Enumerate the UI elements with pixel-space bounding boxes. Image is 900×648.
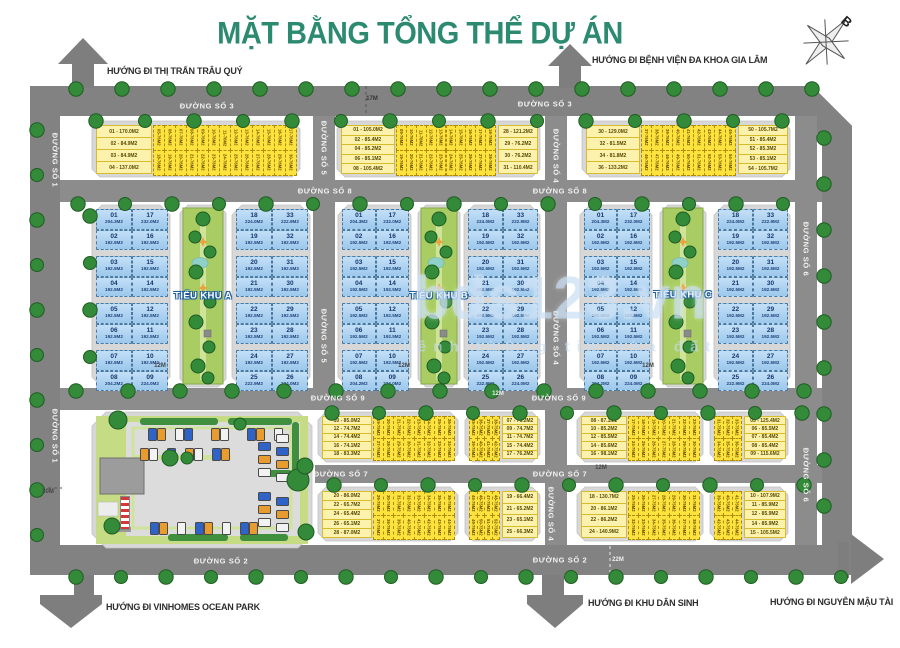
strip-lot: 19-75M2 bbox=[373, 416, 384, 439]
tree-icon bbox=[483, 82, 497, 96]
lot-number: 04 bbox=[110, 281, 117, 288]
strip-lot: 25-76M2 bbox=[230, 150, 242, 176]
parcel-lot: 32192.5M2 bbox=[503, 230, 538, 251]
arrow-stub bbox=[559, 64, 581, 88]
tree-icon bbox=[196, 212, 210, 226]
strip-lot: 38-75M2 bbox=[492, 416, 501, 439]
tree-icon bbox=[161, 82, 175, 96]
strip-label: 09-76M2 bbox=[399, 129, 404, 146]
strip-lot: 36-75M2 bbox=[669, 515, 680, 540]
lot-area: 192.5M2 bbox=[727, 314, 745, 319]
tree-icon bbox=[795, 406, 809, 420]
strip-lot: 28-76M2 bbox=[485, 150, 496, 176]
strip-label: 12-76M2 bbox=[429, 129, 434, 146]
strip-lot: 14-76M2 bbox=[252, 125, 264, 151]
tree-icon bbox=[789, 570, 803, 584]
lot-area: 192.5M2 bbox=[105, 361, 123, 366]
corner-lot: 34 - 81.8M2 bbox=[586, 149, 640, 162]
corner-lot: 02 - 85.4M2 bbox=[341, 135, 395, 146]
tree-icon bbox=[745, 571, 758, 584]
strip-label: 25-75M2 bbox=[437, 419, 442, 436]
strip-lot: 13-76M2 bbox=[241, 125, 253, 151]
strip-label: 45-76M2 bbox=[728, 129, 733, 146]
parcel-lot: 06192.5M2 bbox=[342, 324, 376, 345]
corner-lot: 28 - 121.2M2 bbox=[498, 125, 538, 138]
arrow-right-icon bbox=[851, 534, 884, 584]
corner-lot: 10 - 85.0M2 bbox=[322, 416, 372, 425]
strip-label: 32-75M2 bbox=[631, 519, 636, 536]
lot-area: 192.5M2 bbox=[727, 335, 745, 340]
tree-icon bbox=[475, 571, 488, 584]
parcel-lot: 31192.5M2 bbox=[753, 256, 788, 277]
tree-icon bbox=[817, 407, 831, 421]
strip-label: 47-75M2 bbox=[486, 495, 491, 512]
lot-area: 192.5M2 bbox=[762, 267, 780, 272]
strip-label: 41-75M2 bbox=[735, 495, 740, 512]
tree-icon bbox=[287, 469, 309, 491]
tree-icon bbox=[187, 114, 201, 128]
strip-lot: 45-75M2 bbox=[469, 491, 478, 516]
arrow-bar bbox=[527, 595, 583, 604]
corner-lot: 08 - 87.1M2 bbox=[581, 416, 627, 425]
hedge bbox=[258, 470, 292, 477]
strip-lot: 37-75M2 bbox=[373, 515, 384, 540]
school-building bbox=[100, 458, 144, 494]
lot-number: 25 bbox=[250, 375, 257, 382]
lot-number: 26 bbox=[286, 375, 293, 382]
strip-label: 30-75M2 bbox=[386, 495, 391, 512]
corner-lot: 28 - 87.0M2 bbox=[322, 528, 372, 538]
road-label-vertical: ĐƯỜNG SỐ 4 bbox=[552, 129, 561, 183]
strip-lot: 35-75M2 bbox=[469, 416, 478, 439]
tree-icon bbox=[181, 452, 193, 464]
tree-icon bbox=[234, 418, 246, 430]
lot-number: 22 bbox=[250, 307, 257, 314]
strip-label: 21-75M2 bbox=[396, 419, 401, 436]
car bbox=[249, 522, 258, 535]
tree-icon bbox=[835, 571, 848, 584]
parcel-lot: 21192.5M2 bbox=[236, 277, 272, 298]
car bbox=[195, 522, 204, 535]
lot-area: 222.9M2 bbox=[762, 220, 780, 225]
lot-number: 09 bbox=[389, 375, 396, 382]
tree-icon bbox=[481, 114, 495, 128]
lot-area: 192.5M2 bbox=[141, 335, 159, 340]
strip-lot: 41-75M2 bbox=[732, 491, 742, 516]
tree-icon bbox=[31, 169, 44, 182]
lot-area: 224.0M2 bbox=[727, 220, 745, 225]
lot-number: 27 bbox=[767, 354, 774, 361]
arrow-stub bbox=[72, 62, 94, 88]
tree-icon bbox=[225, 384, 239, 398]
strip-lot: 16-76M2 bbox=[274, 125, 286, 151]
strip-lot: 25-75M2 bbox=[628, 491, 639, 516]
lot-number: 17 bbox=[146, 213, 153, 220]
car bbox=[276, 434, 289, 443]
strip-label: 25-76M2 bbox=[234, 154, 239, 171]
parcel-lot: 14192.5M2 bbox=[376, 277, 410, 298]
tree-icon bbox=[30, 393, 44, 407]
car bbox=[157, 428, 166, 441]
strip-label: 22-75M2 bbox=[406, 419, 411, 436]
strip-label: 29-75M2 bbox=[672, 495, 677, 512]
car bbox=[185, 448, 194, 461]
lot-number: 28 bbox=[286, 328, 293, 335]
strip-label: 28-75M2 bbox=[661, 495, 666, 512]
parcel-lot: 32192.5M2 bbox=[753, 230, 788, 251]
tree-icon bbox=[575, 82, 589, 96]
strip-lot: 36-75M2 bbox=[732, 438, 742, 461]
road-label: ĐƯỜNG SỐ 8 bbox=[533, 187, 587, 196]
lot-number: 19 bbox=[732, 234, 739, 241]
strip-lot: 05-76M2 bbox=[153, 125, 165, 151]
parcel-lot: 08204.2M2 bbox=[342, 371, 376, 392]
strip-label: 14-76M2 bbox=[448, 129, 453, 146]
tree-icon bbox=[119, 198, 132, 211]
corner-lot: 52 - 85.3M2 bbox=[738, 144, 788, 155]
lot-area: 222.9M2 bbox=[281, 220, 299, 225]
lot-number: 06 bbox=[110, 328, 117, 335]
strip-label: 22-76M2 bbox=[201, 154, 206, 171]
lot-area: 224.0M2 bbox=[141, 382, 159, 387]
lot-area: 192.5M2 bbox=[141, 288, 159, 293]
parcel-lot: 20192.5M2 bbox=[236, 256, 272, 277]
car bbox=[240, 522, 249, 535]
tree-icon bbox=[433, 115, 446, 128]
direction-label-benh-vien: HƯỚNG ĐI BỆNH VIỆN ĐA KHOA GIA LÂM bbox=[592, 55, 767, 65]
strip-label: 48-76M2 bbox=[665, 154, 670, 171]
lot-area: 192.5M2 bbox=[592, 361, 610, 366]
strip-label: 45-75M2 bbox=[471, 495, 476, 512]
strip-lot: 25-75M2 bbox=[434, 416, 445, 439]
tree-icon bbox=[249, 570, 263, 584]
strip-lot: 51-76M2 bbox=[693, 150, 704, 176]
lot-number: 29 bbox=[286, 307, 293, 314]
tree-icon bbox=[419, 406, 433, 420]
block-platform bbox=[577, 412, 703, 462]
parcel-lot: 04192.5M2 bbox=[96, 277, 132, 298]
parcel-lot: 12192.5M2 bbox=[132, 303, 168, 324]
tree-icon bbox=[817, 453, 831, 467]
corner-lot: 14 - 85.9M2 bbox=[744, 519, 786, 529]
strip-lot: 31-75M2 bbox=[689, 491, 700, 516]
parcel-lot: 08204.2M2 bbox=[96, 371, 132, 392]
parcel-lot: 11192.5M2 bbox=[132, 324, 168, 345]
strip-lot: 27-75M2 bbox=[648, 491, 659, 516]
strip-lot: 35-75M2 bbox=[723, 438, 733, 461]
parcel-lot: 29192.5M2 bbox=[272, 303, 308, 324]
strip-label: 38-75M2 bbox=[386, 519, 391, 536]
tree-icon bbox=[727, 115, 740, 128]
parcel-lot: 23192.5M2 bbox=[718, 324, 753, 345]
strip-label: 42-76M2 bbox=[696, 129, 701, 146]
tree-icon bbox=[325, 406, 339, 420]
parcel-lot: 07192.5M2 bbox=[342, 350, 376, 371]
hedge bbox=[240, 534, 288, 541]
strip-label: 13-76M2 bbox=[245, 129, 250, 146]
lot-number: 18 bbox=[732, 213, 739, 220]
tree-icon bbox=[189, 315, 203, 329]
block-platform bbox=[318, 487, 458, 541]
lot-area: 222.9M2 bbox=[477, 382, 495, 387]
corner-lot: 09 - 115.6M2 bbox=[744, 450, 786, 459]
strip-label: 40-76M2 bbox=[676, 129, 681, 146]
lot-area: 192.5M2 bbox=[245, 241, 263, 246]
lot-area: 192.5M2 bbox=[141, 267, 159, 272]
car bbox=[258, 468, 271, 477]
strip-lot: 29-75M2 bbox=[669, 491, 680, 516]
strip-lot: 39-76M2 bbox=[662, 125, 673, 151]
strip-lot: 07-76M2 bbox=[175, 125, 187, 151]
strip-lot: 21-75M2 bbox=[669, 416, 680, 439]
lot-area: 222.9M2 bbox=[245, 382, 263, 387]
tree-icon bbox=[713, 82, 727, 96]
strip-label: 32-75M2 bbox=[427, 441, 432, 458]
strip-lot: 13-76M2 bbox=[436, 125, 447, 151]
lot-area: 192.5M2 bbox=[350, 335, 368, 340]
strip-label: 34-75M2 bbox=[447, 441, 452, 458]
corner-lot: 12 - 85.5M2 bbox=[581, 433, 627, 442]
strip-label: 43-75M2 bbox=[437, 519, 442, 536]
strip-label: 38-75M2 bbox=[692, 519, 697, 536]
compass-north-label: B bbox=[838, 13, 855, 30]
strip-lot: 29-75M2 bbox=[679, 438, 690, 461]
lot-area: 192.5M2 bbox=[350, 267, 368, 272]
strip-lot: 40-75M2 bbox=[723, 491, 733, 516]
strip-label: 26-76M2 bbox=[468, 154, 473, 171]
strip-lot: 24-76M2 bbox=[446, 150, 457, 176]
strip-lot: 38-75M2 bbox=[689, 515, 700, 540]
car bbox=[247, 428, 256, 441]
corner-lot: 11 - 74.7M2 bbox=[502, 433, 538, 442]
strip-lot: 30-76M2 bbox=[285, 150, 297, 176]
strip-lot: 25-75M2 bbox=[638, 438, 649, 461]
parcel-lot: 18224.0M2 bbox=[236, 209, 272, 230]
strip-label: 48-75M2 bbox=[493, 495, 498, 512]
strip-label: 30-75M2 bbox=[692, 441, 697, 458]
parcel-lot: 01204.3M2 bbox=[96, 209, 132, 230]
car bbox=[211, 428, 220, 441]
parcel-lot: 30192.5M2 bbox=[753, 277, 788, 298]
block-platform bbox=[337, 121, 540, 177]
corner-lot: 01 - 105.0M2 bbox=[341, 125, 395, 136]
road-label-vertical: ĐƯỜNG SỐ 5 bbox=[320, 121, 329, 175]
tree-icon bbox=[677, 114, 691, 128]
strip-label: 49-76M2 bbox=[676, 154, 681, 171]
watermark-tagline: kênh thông tin nhà đất bbox=[403, 339, 718, 356]
lot-number: 19 bbox=[250, 234, 257, 241]
corner-lot: 14 - 85.6M2 bbox=[581, 441, 627, 450]
alley bbox=[467, 123, 471, 175]
strip-label: 29-75M2 bbox=[376, 495, 381, 512]
strip-label: 50-75M2 bbox=[478, 519, 483, 536]
strip-label: 26-75M2 bbox=[641, 495, 646, 512]
corner-lot: 08 - 85.4M2 bbox=[744, 441, 786, 450]
strip-label: 35-75M2 bbox=[437, 495, 442, 512]
parcel-lot: 25222.9M2 bbox=[236, 371, 272, 392]
lot-number: 30 bbox=[286, 281, 293, 288]
lot-number: 18 bbox=[482, 213, 489, 220]
strip-lot: 52-75M2 bbox=[492, 515, 501, 540]
tree-icon bbox=[745, 384, 759, 398]
parcel-lot: 03192.5M2 bbox=[96, 256, 132, 277]
strip-lot: 50-76M2 bbox=[683, 150, 694, 176]
tower-base bbox=[117, 527, 131, 532]
tree-icon bbox=[641, 384, 655, 398]
tree-icon bbox=[609, 478, 623, 492]
strip-label: 33-75M2 bbox=[735, 419, 740, 436]
strip-lot: 26-75M2 bbox=[648, 438, 659, 461]
road-label: ĐƯỜNG SỐ 3 bbox=[518, 100, 572, 109]
strip-label: 53-76M2 bbox=[717, 154, 722, 171]
strip-lot: 22-76M2 bbox=[426, 150, 437, 176]
car bbox=[177, 522, 186, 535]
tree-icon bbox=[797, 384, 811, 398]
strip-label: 11-76M2 bbox=[223, 130, 228, 146]
strip-label: 33-75M2 bbox=[641, 519, 646, 536]
tree-icon bbox=[189, 265, 203, 279]
lot-area: 222.9M2 bbox=[727, 382, 745, 387]
strip-label: 11-76M2 bbox=[419, 130, 424, 146]
strip-lot: 42-76M2 bbox=[693, 125, 704, 151]
arrow-bar bbox=[40, 595, 102, 604]
block-platform bbox=[577, 487, 703, 541]
tree-icon bbox=[285, 114, 299, 128]
lot-number: 21 bbox=[250, 281, 257, 288]
strip-lot: 25-76M2 bbox=[455, 150, 466, 176]
strip-label: 30-75M2 bbox=[682, 495, 687, 512]
strip-label: 19-76M2 bbox=[399, 154, 404, 171]
parcel-lot: 01204.3M2 bbox=[584, 209, 617, 230]
strip-label: 21-76M2 bbox=[190, 154, 195, 171]
strip-lot: 31-75M2 bbox=[414, 438, 425, 461]
tree-icon bbox=[307, 198, 320, 211]
tree-icon bbox=[751, 479, 764, 492]
lot-area: 224.0M2 bbox=[512, 382, 530, 387]
tree-icon bbox=[495, 198, 508, 211]
strip-label: 46-75M2 bbox=[478, 495, 483, 512]
strip-lot: 49-76M2 bbox=[672, 150, 683, 176]
corner-lot: 07 - 85.4M2 bbox=[744, 433, 786, 442]
lot-area: 192.5M2 bbox=[383, 288, 401, 293]
tree-icon bbox=[531, 115, 544, 128]
car bbox=[258, 518, 271, 527]
tree-icon bbox=[607, 406, 621, 420]
corner-lot: 50 - 105.7M2 bbox=[738, 125, 788, 136]
strip-label: 27-75M2 bbox=[661, 441, 666, 458]
parcel-lot: 17232.0M2 bbox=[617, 209, 650, 230]
strip-lot: 20-75M2 bbox=[383, 416, 394, 439]
parcel-lot: 22192.5M2 bbox=[718, 303, 753, 324]
lot-number: 06 bbox=[355, 328, 362, 335]
strip-lot: 42-75M2 bbox=[424, 515, 435, 540]
zone-label: TIỂU KHU A bbox=[174, 291, 232, 302]
lot-number: 10 bbox=[146, 354, 153, 361]
strip-lot: 44-75M2 bbox=[732, 515, 742, 540]
parking-lane bbox=[133, 428, 291, 528]
tree-icon bbox=[683, 198, 696, 211]
strip-lot: 12-76M2 bbox=[426, 125, 437, 151]
tree-icon bbox=[729, 197, 743, 211]
strip-lot: 21-76M2 bbox=[186, 150, 198, 176]
parcel-lot: 05192.5M2 bbox=[342, 303, 376, 324]
strip-lot: 24-75M2 bbox=[628, 438, 639, 461]
strip-lot: 41-75M2 bbox=[414, 515, 425, 540]
lot-area: 224.0M2 bbox=[245, 220, 263, 225]
strip-lot: 28-76M2 bbox=[263, 150, 275, 176]
strip-lot: 43-75M2 bbox=[723, 515, 733, 540]
strip-lot: 47-76M2 bbox=[651, 150, 662, 176]
lot-number: 02 bbox=[110, 234, 117, 241]
strip-lot: 14-76M2 bbox=[446, 125, 457, 151]
strip-label: 39-75M2 bbox=[396, 519, 401, 536]
strip-lot: 44-75M2 bbox=[444, 515, 455, 540]
strip-lot: 32-75M2 bbox=[628, 515, 639, 540]
lot-area: 204.2M2 bbox=[592, 382, 610, 387]
strip-label: 36-75M2 bbox=[672, 519, 677, 536]
car bbox=[212, 448, 221, 461]
dimension-label: 22M bbox=[612, 557, 624, 563]
lot-area: 192.5M2 bbox=[141, 241, 159, 246]
tree-icon bbox=[609, 570, 623, 584]
strip-label: 34-75M2 bbox=[651, 519, 656, 536]
tree-icon bbox=[165, 197, 179, 211]
tree-icon bbox=[335, 115, 348, 128]
lot-area: 204.3M2 bbox=[105, 220, 123, 225]
lot-number: 11 bbox=[147, 328, 154, 335]
strip-lot: 53-76M2 bbox=[714, 150, 725, 176]
block-platform bbox=[338, 205, 411, 387]
lot-area: 192.5M2 bbox=[625, 241, 643, 246]
tree-icon bbox=[485, 384, 499, 398]
strip-lot: 29-76M2 bbox=[274, 150, 286, 176]
strip-label: 37-76M2 bbox=[644, 129, 649, 146]
lot-area: 192.5M2 bbox=[592, 241, 610, 246]
tree-icon bbox=[541, 197, 555, 211]
lot-area: 192.5M2 bbox=[281, 314, 299, 319]
tree-icon bbox=[433, 384, 447, 398]
corner-lot: 30 - 76.2M2 bbox=[498, 149, 538, 162]
strip-label: 42-75M2 bbox=[493, 441, 498, 458]
strip-label: 08-76M2 bbox=[190, 129, 195, 146]
lot-area: 192.5M2 bbox=[350, 361, 368, 366]
dimension-label: 30M bbox=[42, 489, 54, 495]
strip-label: 29-75M2 bbox=[396, 441, 401, 458]
lot-area: 192.5M2 bbox=[245, 288, 263, 293]
lot-area: 224.0M2 bbox=[383, 382, 401, 387]
lot-number: 09 bbox=[630, 375, 637, 382]
strip-label: 35-75M2 bbox=[726, 441, 731, 458]
parcel-lot: 15192.5M2 bbox=[132, 256, 168, 277]
corner-lot: 36 - 133.2M2 bbox=[586, 161, 640, 174]
tree-icon bbox=[353, 197, 367, 211]
road-label: ĐƯỜNG SỐ 9 bbox=[311, 394, 365, 403]
strip-label: 28-75M2 bbox=[386, 441, 391, 458]
parcel-lot: 27192.5M2 bbox=[272, 350, 308, 371]
dimension-label: 12M bbox=[642, 363, 654, 369]
block-platform bbox=[318, 412, 458, 462]
strip-label: 38-76M2 bbox=[655, 129, 660, 146]
strip-label: 25-76M2 bbox=[458, 154, 463, 171]
strip-label: 27-76M2 bbox=[256, 154, 261, 171]
strip-lot: 06-76M2 bbox=[164, 125, 176, 151]
strip-lot: 11-76M2 bbox=[219, 125, 231, 151]
lot-number: 05 bbox=[110, 307, 117, 314]
strip-label: 22-75M2 bbox=[682, 419, 687, 436]
strip-label: 52-75M2 bbox=[493, 519, 498, 536]
tree-icon bbox=[375, 479, 388, 492]
tree-icon bbox=[579, 114, 593, 128]
